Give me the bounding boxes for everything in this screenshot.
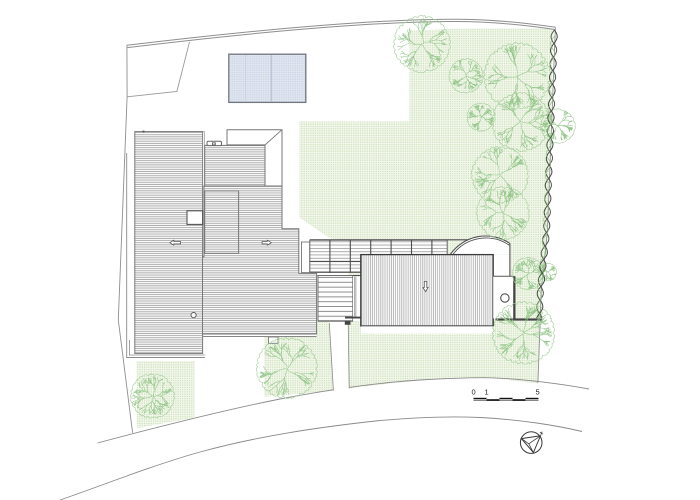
svg-text:1: 1 bbox=[485, 388, 489, 397]
svg-text:5: 5 bbox=[536, 388, 540, 397]
svg-text:0: 0 bbox=[472, 388, 476, 397]
